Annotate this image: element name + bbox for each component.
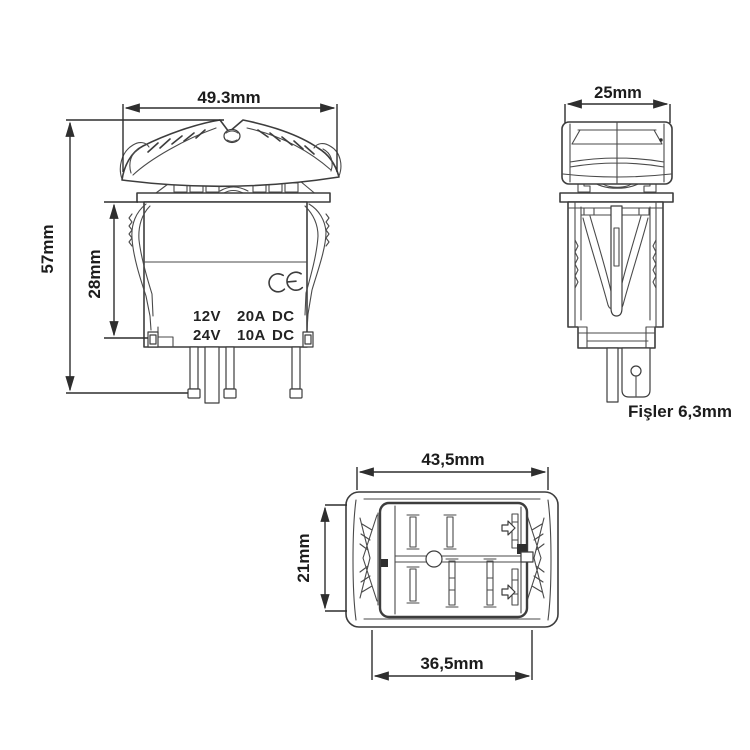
terminal-pin-1 — [190, 347, 198, 389]
side-cap-dot — [659, 138, 662, 141]
clip-right-serration — [326, 214, 329, 246]
rocker-switch-drawing: 12V 20A DC 24V 10A DC 49.3mm 57mm 28mm — [0, 0, 750, 750]
clip-right-shape — [305, 204, 326, 330]
latch-square — [381, 559, 388, 567]
mounting-flange-side — [560, 193, 673, 202]
rocker-cap — [120, 120, 341, 186]
side-rocker-cap — [562, 122, 672, 184]
terminal-size-label: Fişler 6,3mm — [628, 402, 732, 421]
cap-notch-knob — [224, 130, 240, 143]
terminal-pins — [188, 347, 302, 403]
switch-body-front — [129, 202, 329, 347]
side-view: 25mm Fişler 6,3mm — [560, 84, 732, 421]
bottom-panel — [380, 503, 533, 617]
pivot-circle — [426, 551, 442, 567]
mounting-flange-front — [137, 193, 330, 202]
cutout-height-dimension-label: 21mm — [294, 533, 313, 582]
clip-left-serration — [129, 214, 132, 246]
terminal-blades — [607, 348, 650, 402]
rating-10a: 10A — [237, 327, 266, 344]
rating-dc1: DC — [272, 308, 294, 325]
technical-drawing-page: 12V 20A DC 24V 10A DC 49.3mm 57mm 28mm — [0, 0, 750, 750]
rating-24v: 24V — [193, 327, 221, 344]
switch-body-side — [568, 202, 663, 348]
terminal-pin-2-wide — [205, 347, 219, 403]
latch-tab — [521, 552, 533, 562]
rating-12v: 12V — [193, 308, 221, 325]
height-dimension-label: 57mm — [38, 224, 57, 273]
terminal-hole — [631, 366, 641, 376]
clip-right-foot — [303, 332, 313, 347]
side-plunger — [611, 206, 622, 316]
side-width-dimension-label: 25mm — [594, 84, 642, 102]
bottom-view: 43,5mm 21mm 36,5mm — [294, 450, 558, 680]
width-dimension-label: 49.3mm — [197, 88, 260, 107]
terminal-pin-4 — [292, 347, 300, 389]
terminal-blade-narrow — [607, 348, 618, 402]
terminal-pin-3 — [226, 347, 234, 389]
rating-20a: 20A — [237, 308, 266, 325]
body-height-dimension-label: 28mm — [85, 249, 104, 298]
terminal-pin-4-tip — [290, 389, 302, 398]
terminal-pin-3-tip — [224, 389, 236, 398]
inner-width-dimension-label: 36,5mm — [420, 654, 483, 673]
terminal-pin-1-tip — [188, 389, 200, 398]
side-extension-lines — [565, 104, 670, 123]
cutout-width-dimension-label: 43,5mm — [421, 450, 484, 469]
front-view: 12V 20A DC 24V 10A DC 49.3mm 57mm 28mm — [38, 88, 341, 403]
rating-dc2: DC — [272, 327, 294, 344]
clip-left-foot — [148, 332, 158, 347]
